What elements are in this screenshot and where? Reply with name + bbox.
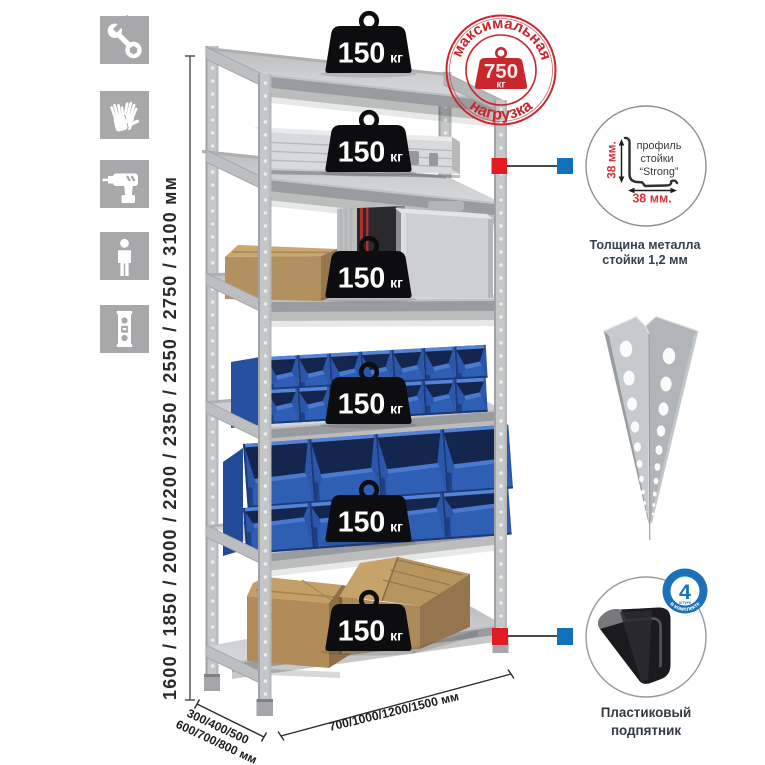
svg-text:кг: кг xyxy=(390,50,403,66)
svg-text:стойки 1,2 мм: стойки 1,2 мм xyxy=(602,253,688,267)
svg-text:Пластиковый: Пластиковый xyxy=(601,705,691,720)
svg-text:150: 150 xyxy=(338,263,386,295)
svg-text:кг: кг xyxy=(390,519,403,535)
svg-text:подпятник: подпятник xyxy=(611,723,681,738)
svg-text:38 мм.: 38 мм. xyxy=(605,141,619,179)
svg-text:кг: кг xyxy=(390,149,403,165)
svg-text:м: м xyxy=(491,15,503,33)
svg-text:150: 150 xyxy=(338,137,386,169)
svg-text:профиль: профиль xyxy=(637,140,682,152)
svg-text:“Strong”: “Strong” xyxy=(639,166,678,178)
svg-text:700/1000/1200/1500 мм: 700/1000/1200/1500 мм xyxy=(327,689,460,734)
svg-text:стойки: стойки xyxy=(640,153,673,165)
svg-text:штуки: штуки xyxy=(679,600,692,605)
svg-text:кг: кг xyxy=(390,401,403,417)
svg-text:150: 150 xyxy=(338,38,386,70)
svg-text:150: 150 xyxy=(338,507,386,539)
svg-text:кг: кг xyxy=(496,80,505,91)
svg-text:кг: кг xyxy=(390,275,403,291)
svg-text:кг: кг xyxy=(390,628,403,644)
svg-text:150: 150 xyxy=(338,616,386,648)
svg-text:Толщина металла: Толщина металла xyxy=(589,238,701,252)
svg-text:1600 / 1850 / 2000 / 2200 / 23: 1600 / 1850 / 2000 / 2200 / 2350 / 2550 … xyxy=(160,176,180,700)
svg-text:38 мм.: 38 мм. xyxy=(632,192,671,206)
svg-text:150: 150 xyxy=(338,389,386,421)
